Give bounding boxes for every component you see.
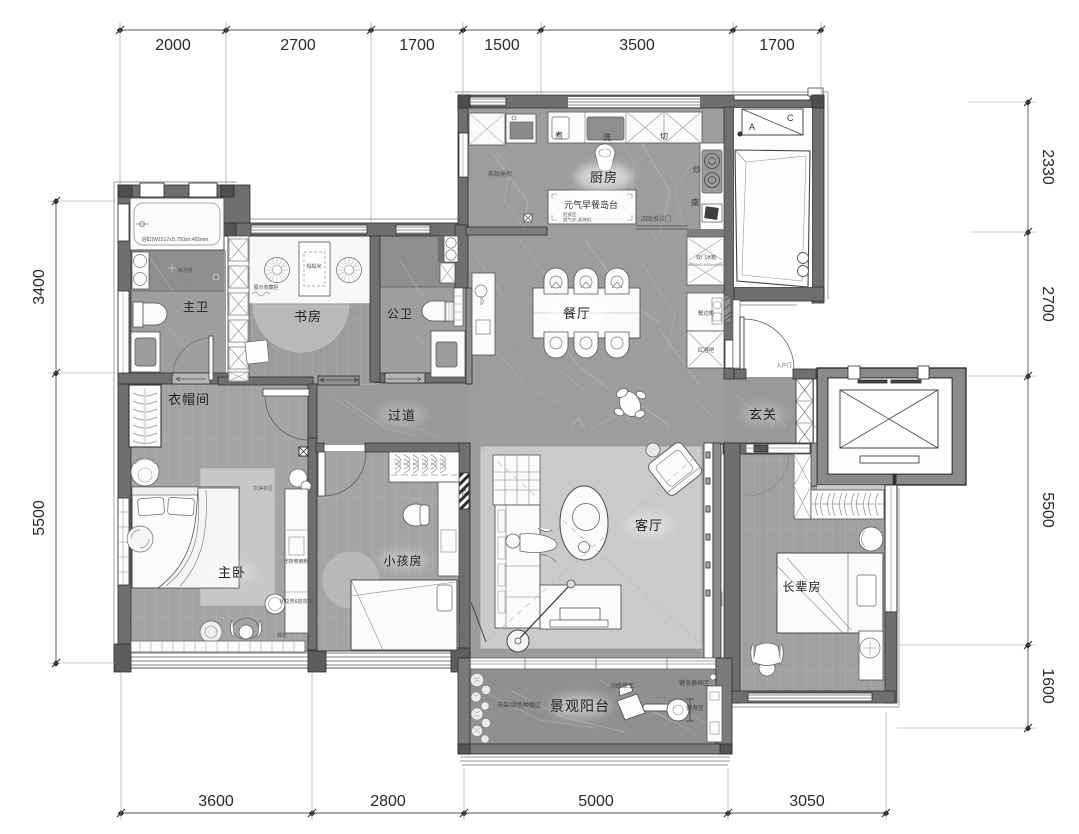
svg-text:餐边柜: 餐边柜 [698, 309, 715, 317]
svg-text:餐厅: 餐厅 [563, 306, 591, 321]
svg-text:入户门: 入户门 [776, 362, 791, 369]
svg-text:红酒吧: 红酒吧 [698, 346, 715, 354]
svg-text:小孩房: 小孩房 [383, 553, 422, 568]
svg-text:淋浴房: 淋浴房 [177, 267, 192, 274]
svg-text:5500: 5500 [31, 500, 48, 536]
svg-text:1700: 1700 [759, 37, 795, 54]
svg-text:煮: 煮 [555, 130, 563, 140]
svg-text:衣帽间: 衣帽间 [168, 392, 210, 407]
svg-text:浴缸(W1517xD.750xh:465mm: 浴缸(W1517xD.750xh:465mm [142, 236, 209, 243]
svg-text:1500: 1500 [484, 37, 520, 54]
svg-text:1700: 1700 [399, 37, 435, 54]
svg-text:3050: 3050 [789, 793, 825, 810]
svg-text:2700: 2700 [280, 37, 316, 54]
svg-text:C: C [787, 113, 794, 123]
svg-text:3500: 3500 [619, 37, 655, 54]
svg-text:A: A [749, 122, 755, 132]
svg-text:5000: 5000 [578, 793, 614, 810]
svg-text:3600: 3600 [198, 793, 234, 810]
svg-text:四联推拉门: 四联推拉门 [641, 215, 671, 223]
svg-text:主卧: 主卧 [218, 565, 246, 580]
svg-text:切: 切 [660, 132, 668, 141]
svg-text:过道: 过道 [388, 408, 416, 423]
svg-text:5500: 5500 [1039, 492, 1056, 528]
svg-text:2700: 2700 [1039, 286, 1056, 322]
svg-text:书房: 书房 [294, 309, 322, 324]
svg-text:矮柜: 矮柜 [277, 632, 287, 639]
svg-text:洗: 洗 [603, 132, 611, 142]
svg-text:花架/绿色种植区: 花架/绿色种植区 [497, 701, 541, 709]
svg-text:元气早餐岛台: 元气早餐岛台 [564, 199, 618, 210]
svg-text:动感单车: 动感单车 [610, 682, 634, 690]
svg-text:家政高柜: 家政高柜 [488, 170, 512, 178]
svg-text:长辈房: 长辈房 [782, 579, 821, 594]
svg-text:健身区: 健身区 [686, 704, 704, 712]
svg-text:次净衣区: 次净衣区 [253, 485, 273, 492]
svg-text:双门冰箱: 双门冰箱 [696, 254, 716, 261]
svg-text:1600: 1600 [1039, 668, 1056, 704]
svg-text:展示收藏柜: 展示收藏柜 [253, 284, 278, 291]
svg-text:健身器械区: 健身器械区 [679, 679, 709, 687]
svg-text:W600xD,600xH1900: W600xD,600xH1900 [688, 262, 726, 267]
svg-text:主卫: 主卫 [183, 300, 209, 314]
svg-text:公卫: 公卫 [387, 307, 413, 321]
svg-text:化妆收纳柜: 化妆收纳柜 [283, 558, 308, 565]
svg-text:炒: 炒 [693, 165, 701, 174]
svg-text:化妆凳&梳妆镜: 化妆凳&梳妆镜 [279, 598, 312, 605]
svg-text:榻榻米: 榻榻米 [306, 263, 321, 270]
svg-text:客厅: 客厅 [635, 518, 663, 533]
svg-text:燃气炉,蒸烤机: 燃气炉,蒸烤机 [563, 217, 592, 224]
svg-text:厨房: 厨房 [590, 170, 618, 185]
svg-text:KD: KD [460, 489, 466, 498]
svg-text:景观阳台: 景观阳台 [550, 698, 610, 714]
svg-text:3400: 3400 [31, 269, 48, 305]
svg-text:2330: 2330 [1039, 149, 1056, 185]
svg-text:2800: 2800 [370, 793, 406, 810]
svg-text:玄关: 玄关 [749, 407, 777, 422]
svg-text:盛: 盛 [691, 197, 699, 207]
svg-text:2000: 2000 [155, 37, 191, 54]
